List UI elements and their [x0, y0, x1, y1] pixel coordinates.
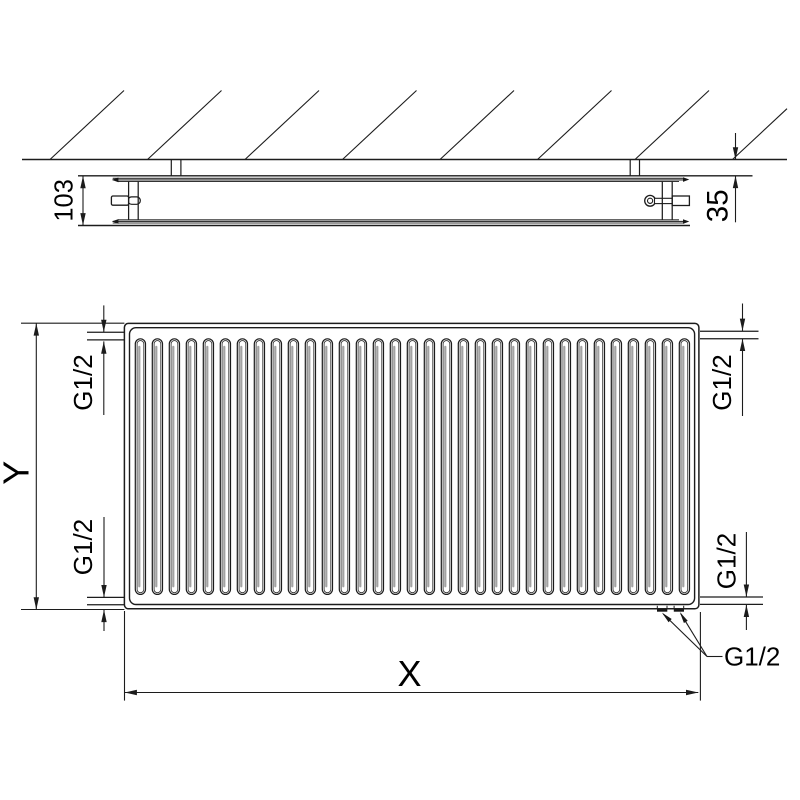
- svg-text:G1/2: G1/2: [724, 642, 780, 672]
- svg-text:G1/2: G1/2: [68, 354, 98, 410]
- svg-text:35: 35: [702, 189, 735, 222]
- svg-text:103: 103: [50, 179, 78, 222]
- svg-text:G1/2: G1/2: [68, 519, 98, 575]
- svg-text:X: X: [397, 653, 421, 694]
- svg-text:Y: Y: [0, 461, 36, 485]
- svg-text:G1/2: G1/2: [707, 354, 737, 410]
- svg-text:G1/2: G1/2: [712, 533, 742, 589]
